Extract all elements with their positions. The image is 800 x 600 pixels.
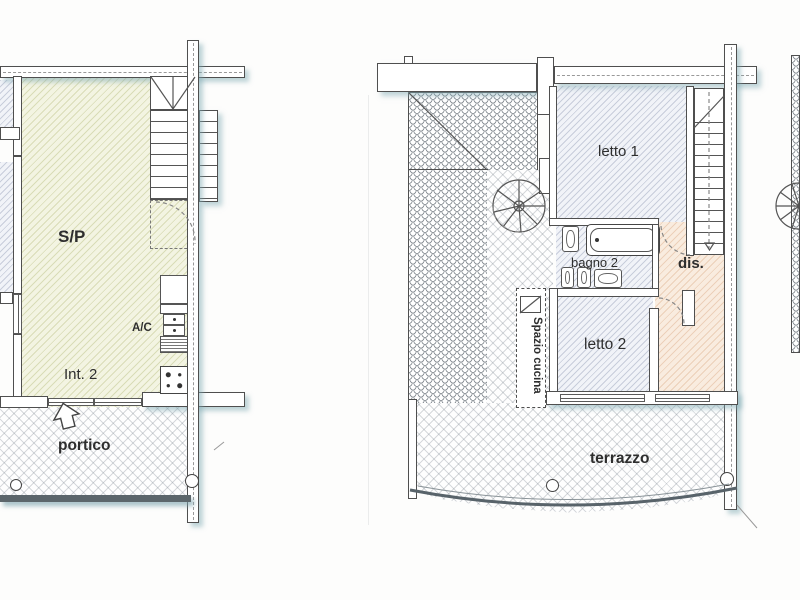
terrace-left-wall xyxy=(408,399,417,499)
terrace-column xyxy=(546,479,559,492)
bedroom1-label: letto 1 xyxy=(598,143,639,160)
adjacent-plan-roof-sliver xyxy=(791,55,800,353)
hall-nook-wall xyxy=(682,290,695,326)
vanity xyxy=(594,269,622,288)
hallway-label: dis. xyxy=(678,255,704,272)
bathroom-right-stub xyxy=(652,224,659,290)
bedroom1-left-wall xyxy=(549,86,557,226)
bottom-window xyxy=(560,394,645,402)
terrace-label: terrazzo xyxy=(590,450,649,468)
terrace-paving xyxy=(410,403,737,515)
bathtub xyxy=(586,224,660,256)
bottom-window xyxy=(655,394,710,402)
roof-upper xyxy=(408,92,538,171)
right-structural-wall xyxy=(724,44,737,510)
kitchen-space-label: Spazio cucina xyxy=(519,317,543,405)
terrace-column xyxy=(720,472,734,486)
eaves-beam xyxy=(377,63,537,92)
bedroom2-right-wall xyxy=(649,308,659,394)
stair-steps xyxy=(695,112,723,248)
bathroom-bottom-wall xyxy=(549,288,659,297)
bedroom2-label: letto 2 xyxy=(584,336,626,354)
bathroom-label: bagno 2 xyxy=(571,255,618,270)
roof-lower-strip xyxy=(408,169,488,407)
floor-plan-scan: S/P A/C Int. 2 portico xyxy=(0,0,800,600)
bedroom2-left-wall xyxy=(549,288,558,404)
toilet xyxy=(561,267,574,288)
kitchen-space-symbol xyxy=(520,296,541,313)
bidet xyxy=(577,267,591,288)
bedroom1-right-wall xyxy=(686,86,694,256)
washbasin xyxy=(562,226,579,252)
upper-floor-plan: letto 1 bagno 2 dis. letto 2 terrazzo Sp… xyxy=(0,0,800,600)
